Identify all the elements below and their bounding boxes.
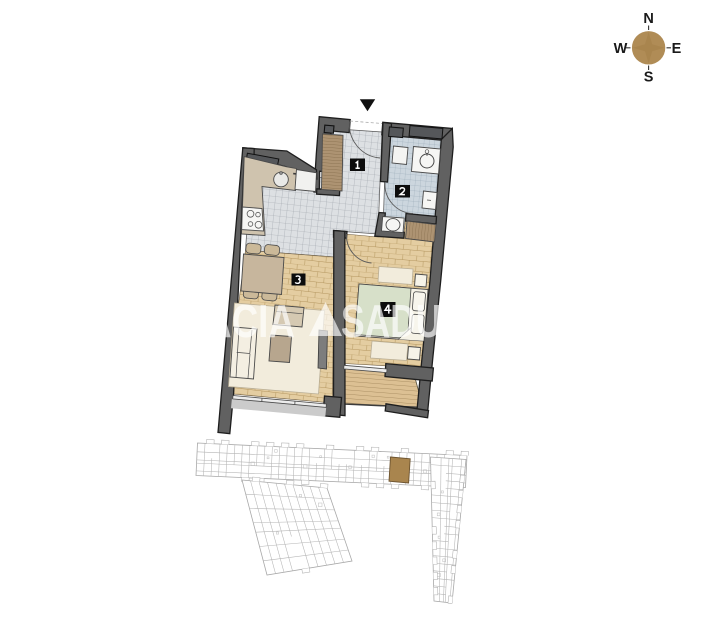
svg-text:N: N (643, 11, 653, 27)
svg-text:E: E (672, 41, 682, 57)
svg-text:ACIA: ACIA (205, 295, 295, 347)
svg-text:S: S (644, 70, 654, 86)
svg-text:SADU: SADU (341, 296, 441, 348)
svg-text:W: W (614, 41, 628, 57)
